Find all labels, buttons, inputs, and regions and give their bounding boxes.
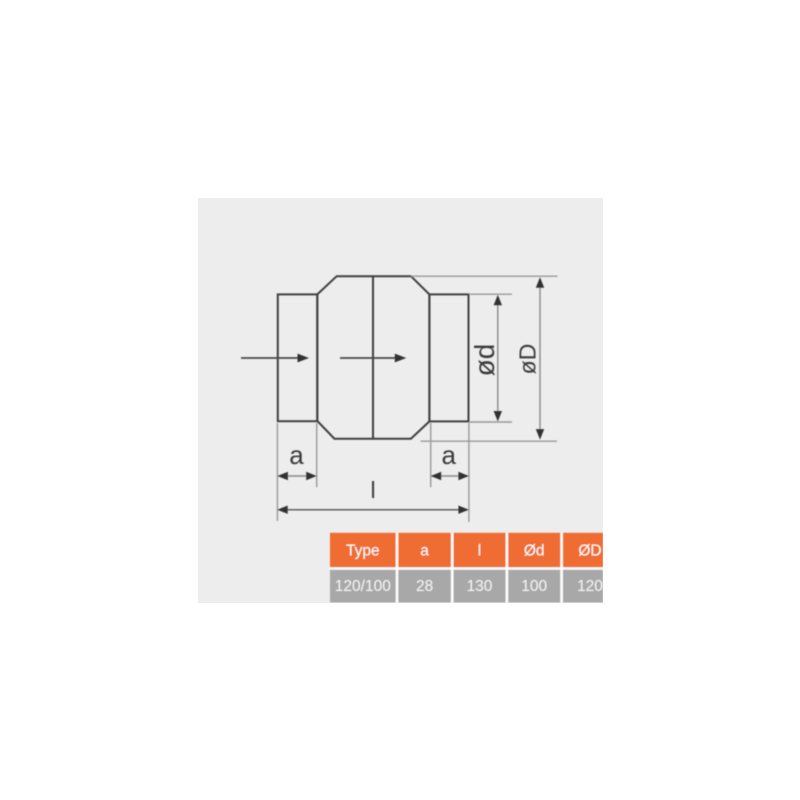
svg-text:120: 120 (577, 578, 603, 595)
svg-text:a: a (441, 440, 456, 470)
svg-text:a: a (289, 440, 304, 470)
svg-text:28: 28 (416, 578, 433, 595)
svg-text:120/100: 120/100 (335, 578, 391, 595)
svg-text:Ød: Ød (524, 543, 545, 560)
svg-text:ød: ød (469, 344, 500, 377)
svg-text:øD: øD (515, 344, 541, 375)
svg-text:l: l (478, 543, 481, 560)
svg-text:ØD: ØD (578, 543, 601, 560)
svg-text:Type: Type (346, 543, 380, 560)
svg-text:a: a (420, 543, 429, 560)
svg-text:130: 130 (467, 578, 493, 595)
svg-text:l: l (370, 477, 375, 503)
svg-text:100: 100 (521, 578, 547, 595)
